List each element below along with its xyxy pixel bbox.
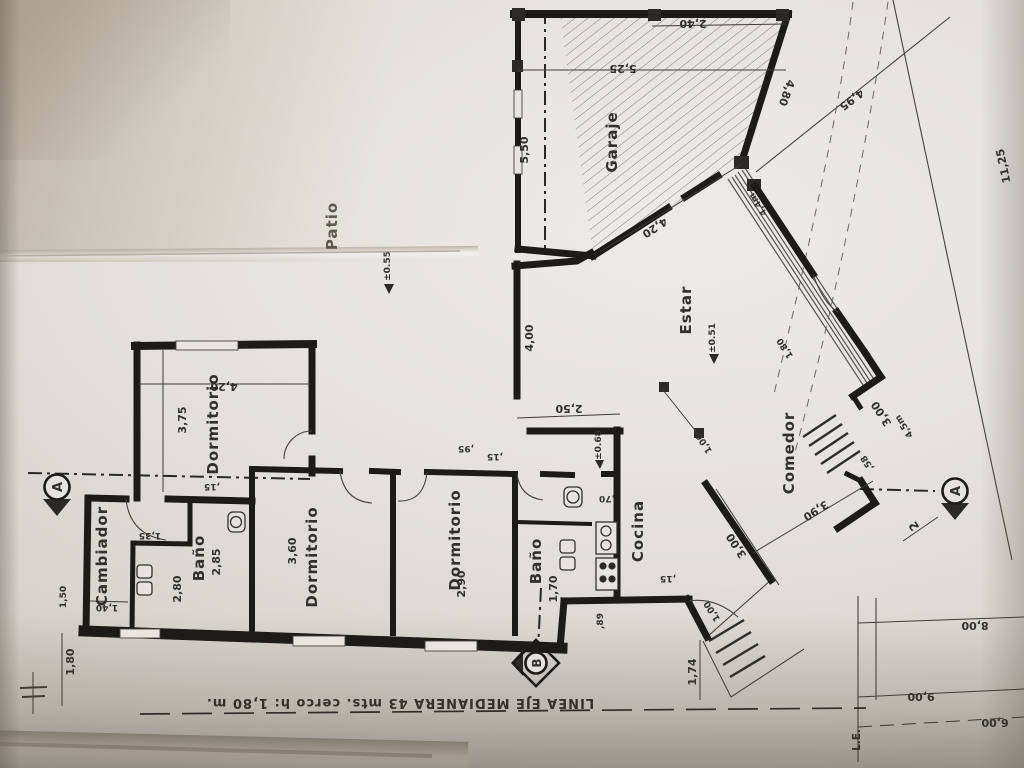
dim-entry-jamb: ,15 xyxy=(660,573,676,583)
dim-comedor-width: 3,90 xyxy=(801,498,831,524)
note-2: 2 xyxy=(906,519,922,534)
stove-icon xyxy=(596,558,618,590)
dim-yard-height: 1,80 xyxy=(64,648,77,675)
room-bano2: Baño xyxy=(527,538,545,585)
dim-cambiador-width: 1,40 xyxy=(96,602,118,612)
dim-garage-bay-left: 5,50 xyxy=(518,136,531,163)
floor-plan-drawing: A A B Garaje Patio Estar Comedor Cocina … xyxy=(0,0,1024,768)
room-bano1: Baño xyxy=(190,535,208,582)
dim-lot-bottom-a: 8,00 xyxy=(961,619,988,632)
dim-hall-width: 2,50 xyxy=(555,402,582,415)
room-estar: Estar xyxy=(677,286,695,335)
wc-icon xyxy=(137,565,152,578)
dim-side-passage: 1,50 xyxy=(59,586,69,608)
dim-porch-length: 3,00 xyxy=(868,399,894,429)
room-comedor: Comedor xyxy=(780,412,798,495)
bidet-icon xyxy=(560,557,575,570)
dim-lot-bottom-c: 6,00 xyxy=(981,716,1008,729)
level-markers xyxy=(384,284,719,469)
paper-fold-line xyxy=(0,744,432,756)
dim-bano1-niche: 1,35 xyxy=(139,530,161,540)
dim-bano1-length: 2,80 xyxy=(171,575,184,602)
dim-entry-door: 1,00 xyxy=(702,599,722,623)
section-marker-a-left: A xyxy=(43,475,71,517)
dim-bano2-width: 1,70 xyxy=(547,575,560,602)
section-lines xyxy=(28,10,935,650)
dim-entry-side: ,89 xyxy=(596,613,606,629)
dim-lot-bottom-b: 9,00 xyxy=(907,690,934,703)
dim-bano1-depth: 2,85 xyxy=(210,548,223,575)
bidet-icon xyxy=(137,582,152,595)
linea-edificacion-label: L.E. xyxy=(851,729,863,751)
dim-dorm3-jamb-a: ,95 xyxy=(458,443,474,453)
dim-porch-door: 1,80 xyxy=(775,336,795,360)
dim-dorm3-jamb-b: ,15 xyxy=(487,451,503,461)
section-marker-a-right: A xyxy=(941,479,969,521)
room-garaje: Garaje xyxy=(603,111,621,172)
porch-stairs xyxy=(803,415,860,473)
room-cambiador: Cambiador xyxy=(93,506,111,606)
dim-cocina-pass: ,70 xyxy=(599,493,615,503)
dim-dorm3-width: 2,90 xyxy=(455,570,468,597)
level-patio: ±0.55 xyxy=(383,251,393,281)
dim-lot-diagonal: 4,95 xyxy=(837,86,866,113)
dim-porch-jamb: ,58 xyxy=(859,453,876,472)
dim-garage-side: 4,80 xyxy=(776,78,798,108)
room-cocina: Cocina xyxy=(629,500,647,562)
dim-dorm1-length: 4,20 xyxy=(210,380,237,393)
dim-dorm2-width: 3,60 xyxy=(286,537,299,564)
door-arcs xyxy=(126,274,838,617)
entry-steps xyxy=(703,580,804,697)
dim-garage-width: 5,25 xyxy=(609,62,636,75)
dim-garage-bay-top: 2,40 xyxy=(679,17,706,30)
level-estar: ±0.51 xyxy=(708,323,718,353)
dim-lot-right-edge: 11,25 xyxy=(994,148,1014,185)
dim-hall-length: 4,00 xyxy=(523,324,536,351)
dim-dorm1-jamb: ,15 xyxy=(204,481,220,491)
section-b-label: B xyxy=(530,658,544,667)
dim-gallery-post: 1,06 xyxy=(694,431,714,455)
toilet-icon xyxy=(567,491,579,503)
dim-entry-depth: 1,74 xyxy=(686,658,699,685)
boundary-text: LINEA EJE MEDIANERA 43 mts. cerco h: 1,8… xyxy=(206,695,594,710)
dim-ramp-b: 4,5m xyxy=(894,413,916,440)
room-patio: Patio xyxy=(323,202,341,250)
dim-dorm1-width: 3,75 xyxy=(176,406,189,433)
section-a-label: A xyxy=(949,486,964,496)
floor-plan-photo: A A B Garaje Patio Estar Comedor Cocina … xyxy=(0,0,1024,768)
level-hall: ±0.68 xyxy=(594,430,604,460)
section-a-label: A xyxy=(51,482,66,492)
room-dormitorio2: Dormitorio xyxy=(303,506,321,607)
bathroom2-fixtures xyxy=(560,487,582,570)
toilet-icon xyxy=(231,517,242,528)
wc-icon xyxy=(560,540,575,553)
